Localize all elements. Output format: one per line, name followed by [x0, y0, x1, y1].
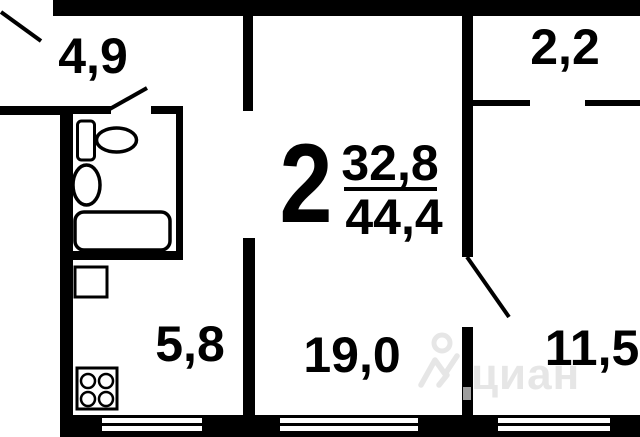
apartment-rooms-count: 2	[280, 128, 333, 240]
watermark-text: циан	[471, 353, 580, 397]
room-label-hallway: 4,9	[58, 31, 128, 81]
cian-logo-icon	[416, 330, 464, 394]
living-area-value: 32,8	[341, 138, 438, 188]
stove-icon	[77, 368, 117, 409]
room-label-kitchen: 5,8	[155, 319, 225, 369]
bathtub-icon	[75, 212, 170, 250]
refrigerator-icon	[75, 267, 107, 297]
floor-plan: 4,9 2,2 5,8 19,0 11,5 2 32,8 44,4 циан	[0, 0, 640, 437]
total-area-value: 44,4	[345, 192, 442, 242]
watermark-overlap-patch	[463, 387, 471, 400]
toilet-icon	[78, 121, 137, 160]
sink-icon	[73, 165, 100, 205]
room-label-storage: 2,2	[530, 22, 600, 72]
room-label-living: 19,0	[303, 330, 400, 380]
